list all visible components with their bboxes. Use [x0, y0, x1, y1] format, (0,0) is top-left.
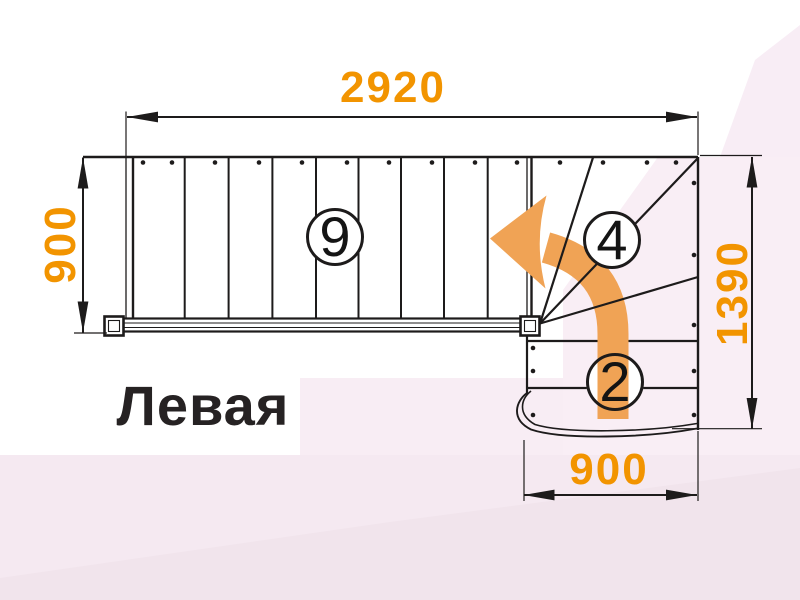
step-count-straight-flight: 9 [306, 208, 364, 266]
dimension-label-left-height: 900 [39, 204, 83, 283]
handrail [122, 319, 523, 332]
dimension-label-top-width: 2920 [340, 66, 446, 110]
step-count-winders: 4 [583, 211, 641, 269]
plan-title: Левая [117, 378, 290, 434]
newel-post-corner-inner [525, 321, 536, 332]
handrail-outline [122, 319, 523, 332]
step-count-bottom-flight: 2 [586, 353, 644, 411]
dimension-label-bottom-width: 900 [569, 448, 648, 492]
newel-post-left-inner [109, 321, 120, 332]
stair-plan-drawing: 2920 900 1390 900 Левая 9 4 2 [0, 0, 800, 600]
dimension-label-right-height: 1390 [711, 240, 755, 346]
